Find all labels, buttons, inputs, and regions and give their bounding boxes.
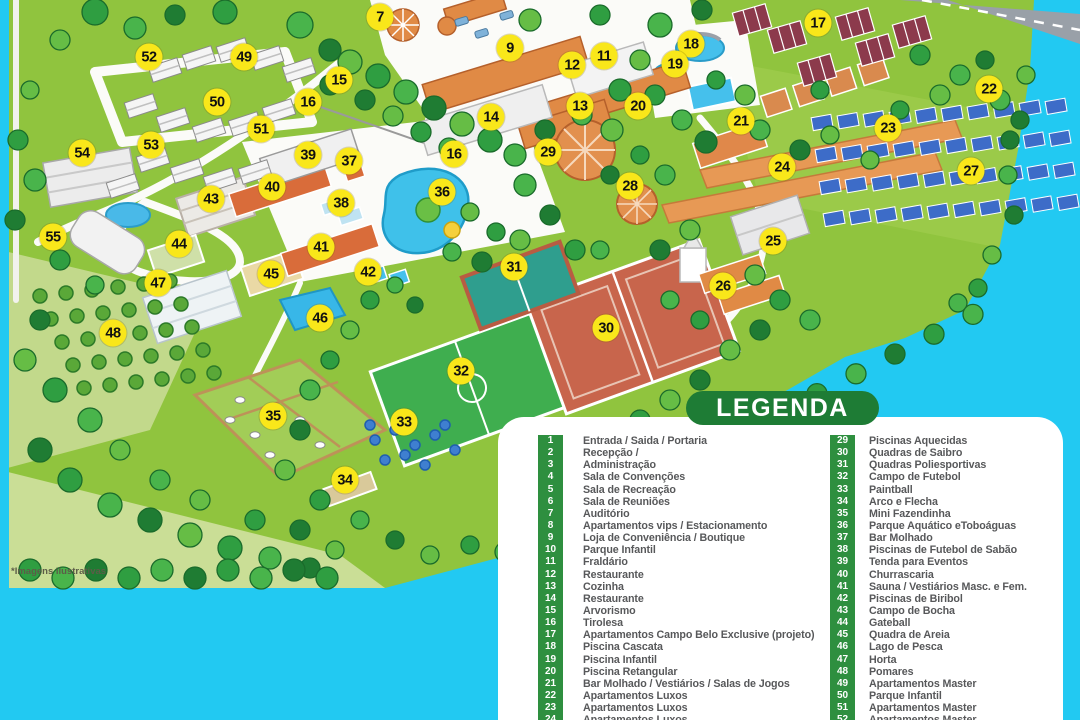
- tree-icon: [190, 490, 210, 510]
- tree-icon: [138, 508, 162, 532]
- map-marker-7: 7: [367, 4, 394, 31]
- legend-row: 3Administração: [538, 459, 814, 471]
- tree-icon: [422, 96, 446, 120]
- legend-item-label: Piscina Cascata: [583, 641, 663, 653]
- solar-panel: [875, 207, 897, 223]
- map-marker-42: 42: [355, 259, 382, 286]
- legend-column-2: 29Piscinas Aquecidas30Quadras de Saibro3…: [830, 435, 1027, 720]
- legend-item-label: Apartamentos Luxos: [583, 702, 688, 714]
- legend-row: 51Apartamentos Master: [830, 702, 1027, 714]
- map-marker-9: 9: [497, 35, 524, 62]
- legend-row: 7Auditório: [538, 508, 814, 520]
- legend-row: 19Piscina Infantil: [538, 654, 814, 666]
- map-marker-28: 28: [617, 173, 644, 200]
- tree-icon: [450, 112, 474, 136]
- inflatable: [410, 440, 420, 450]
- tree-icon: [1017, 66, 1035, 84]
- legend-item-label: Churrascaria: [869, 569, 934, 581]
- legend-row: 8Apartamentos vips / Estacionamento: [538, 520, 814, 532]
- map-marker-54: 54: [69, 140, 96, 167]
- map-marker-33: 33: [391, 409, 418, 436]
- tree-icon: [275, 460, 295, 480]
- tree-icon: [800, 310, 820, 330]
- tree-icon: [680, 220, 700, 240]
- tree-icon: [821, 126, 839, 144]
- tree-icon: [321, 351, 339, 369]
- legend-item-label: Arvorismo: [583, 605, 636, 617]
- tree-icon: [394, 80, 418, 104]
- farm-animal: [235, 397, 245, 403]
- tree-icon: [407, 297, 423, 313]
- tree-icon: [735, 85, 755, 105]
- map-marker-35: 35: [260, 403, 287, 430]
- legend-item-label: Sala de Reuniões: [583, 496, 670, 508]
- solar-panel: [967, 104, 989, 120]
- legend-item-label: Piscinas de Futebol de Sabão: [869, 544, 1017, 556]
- legend-item-number: 47: [830, 654, 855, 666]
- tree-icon: [720, 340, 740, 360]
- map-marker-29: 29: [535, 139, 562, 166]
- fruit-tree: [66, 358, 80, 372]
- solar-panel: [1031, 196, 1053, 212]
- fruit-tree: [170, 346, 184, 360]
- legend-item-number: 18: [538, 641, 563, 653]
- legend-item-number: 20: [538, 666, 563, 678]
- legend-item-number: 32: [830, 471, 855, 483]
- tree-icon: [8, 130, 28, 150]
- tree-icon: [510, 230, 530, 250]
- legend-panel: 1Entrada / Saida / Portaria2Recepção /3A…: [498, 417, 1063, 720]
- inflatable: [370, 435, 380, 445]
- solar-panel: [893, 141, 915, 157]
- legend-row: 17Apartamentos Campo Belo Exclusive (pro…: [538, 629, 814, 641]
- map-marker-26: 26: [710, 273, 737, 300]
- solar-panel: [941, 105, 963, 121]
- legend-item-label: Piscina Retangular: [583, 666, 677, 678]
- legend-item-number: 2: [538, 447, 563, 459]
- tree-icon: [259, 547, 281, 569]
- tree-icon: [811, 81, 829, 99]
- fruit-tree: [181, 369, 195, 383]
- inflatable: [420, 460, 430, 470]
- inflatable: [365, 420, 375, 430]
- fruit-tree: [55, 335, 69, 349]
- tree-icon: [461, 536, 479, 554]
- legend-row: 46Lago de Pesca: [830, 641, 1027, 653]
- map-marker-25: 25: [760, 228, 787, 255]
- legend-row: 34Arco e Flecha: [830, 496, 1027, 508]
- fruit-tree: [77, 381, 91, 395]
- legend-item-label: Fraldário: [583, 556, 628, 568]
- tree-icon: [290, 420, 310, 440]
- solar-panel: [841, 145, 863, 161]
- tree-icon: [351, 511, 369, 529]
- tree-icon: [660, 390, 680, 410]
- tree-icon: [86, 276, 104, 294]
- solar-panel: [871, 175, 893, 191]
- legend-row: 13Cozinha: [538, 581, 814, 593]
- legend-item-label: Piscinas de Biribol: [869, 593, 963, 605]
- legend-item-label: Arco e Flecha: [869, 496, 938, 508]
- legend-item-number: 11: [538, 556, 563, 568]
- legend-row: 14Restaurante: [538, 593, 814, 605]
- legend-item-number: 50: [830, 690, 855, 702]
- tree-icon: [50, 250, 70, 270]
- tree-icon: [443, 243, 461, 261]
- map-marker-39: 39: [295, 142, 322, 169]
- solar-panel: [897, 173, 919, 189]
- legend-item-label: Restaurante: [583, 569, 644, 581]
- legend-item-number: 6: [538, 496, 563, 508]
- legend-item-number: 4: [538, 471, 563, 483]
- legend-item-number: 42: [830, 593, 855, 605]
- legend-row: 38Piscinas de Futebol de Sabão: [830, 544, 1027, 556]
- legend-item-number: 17: [538, 629, 563, 641]
- legend-item-number: 44: [830, 617, 855, 629]
- legend-item-number: 29: [830, 435, 855, 447]
- tree-icon: [218, 536, 242, 560]
- legend-item-label: Loja de Conveniência / Boutique: [583, 532, 745, 544]
- legend-title: LEGENDA: [686, 391, 879, 425]
- legend-item-label: Entrada / Saida / Portaria: [583, 435, 707, 447]
- map-marker-46: 46: [307, 305, 334, 332]
- tree-icon: [861, 151, 879, 169]
- map-marker-24: 24: [769, 154, 796, 181]
- legend-item-number: 5: [538, 484, 563, 496]
- map-marker-52: 52: [136, 44, 163, 71]
- inflatable: [440, 420, 450, 430]
- tree-icon: [630, 50, 650, 70]
- tree-icon: [478, 128, 502, 152]
- tree-icon: [690, 370, 710, 390]
- tree-icon: [5, 210, 25, 230]
- legend-item-number: 21: [538, 678, 563, 690]
- tree-icon: [695, 131, 717, 153]
- legend-item-label: Horta: [869, 654, 896, 666]
- legend-row: 36Parque Aquático eToboáguas: [830, 520, 1027, 532]
- map-marker-23: 23: [875, 115, 902, 142]
- tree-icon: [213, 0, 237, 24]
- map-marker-49: 49: [231, 44, 258, 71]
- fruit-tree: [70, 309, 84, 323]
- tree-icon: [366, 64, 390, 88]
- fruit-tree: [155, 372, 169, 386]
- tree-icon: [310, 490, 330, 510]
- tree-icon: [1005, 206, 1023, 224]
- legend-item-label: Sala de Recreação: [583, 484, 676, 496]
- solar-panel: [1049, 130, 1071, 146]
- fruit-tree: [103, 378, 117, 392]
- solar-panel: [815, 146, 837, 162]
- tree-icon: [250, 567, 272, 589]
- tree-icon: [290, 520, 310, 540]
- tree-icon: [601, 119, 623, 141]
- legend-item-label: Mini Fazendinha: [869, 508, 951, 520]
- tree-icon: [692, 0, 712, 20]
- fruit-tree: [92, 355, 106, 369]
- map-marker-34: 34: [332, 467, 359, 494]
- legend-item-label: Campo de Bocha: [869, 605, 955, 617]
- tree-icon: [124, 17, 146, 39]
- map-marker-41: 41: [308, 234, 335, 261]
- legend-item-number: 46: [830, 641, 855, 653]
- tree-icon: [976, 51, 994, 69]
- legend-item-number: 33: [830, 484, 855, 496]
- tree-icon: [118, 567, 140, 589]
- tree-icon: [184, 567, 206, 589]
- map-marker-31: 31: [501, 254, 528, 281]
- map-marker-37: 37: [336, 148, 363, 175]
- legend-item-number: 31: [830, 459, 855, 471]
- legend-row: 32Campo de Futebol: [830, 471, 1027, 483]
- legend-item-number: 1: [538, 435, 563, 447]
- solar-panel: [953, 201, 975, 217]
- tree-icon: [150, 470, 170, 490]
- legend-item-number: 45: [830, 629, 855, 641]
- legend-row: 29Piscinas Aquecidas: [830, 435, 1027, 447]
- tree-icon: [50, 30, 70, 50]
- tree-icon: [650, 240, 670, 260]
- legend-item-label: Sauna / Vestiários Masc. e Fem.: [869, 581, 1027, 593]
- tree-icon: [326, 541, 344, 559]
- legend-row: 31Quadras Poliesportivas: [830, 459, 1027, 471]
- legend-item-label: Gateball: [869, 617, 910, 629]
- legend-item-label: Restaurante: [583, 593, 644, 605]
- legend-item-label: Quadras de Saibro: [869, 447, 962, 459]
- legend-row: 5Sala de Recreação: [538, 484, 814, 496]
- tree-icon: [846, 364, 866, 384]
- solar-panel: [819, 178, 841, 194]
- map-marker-16b: 16: [441, 141, 468, 168]
- map-marker-11: 11: [591, 43, 618, 70]
- tree-icon: [341, 321, 359, 339]
- legend-row: 49Apartamentos Master: [830, 678, 1027, 690]
- tree-icon: [655, 165, 675, 185]
- inflatable: [400, 450, 410, 460]
- legend-item-number: 39: [830, 556, 855, 568]
- legend-row: 40Churrascaria: [830, 569, 1027, 581]
- water-left-strip: [0, 0, 9, 720]
- tree-icon: [514, 174, 536, 196]
- solar-panel: [923, 171, 945, 187]
- fruit-tree: [33, 289, 47, 303]
- legend-row: 2Recepção /: [538, 447, 814, 459]
- map-marker-14: 14: [478, 104, 505, 131]
- legend-item-number: 40: [830, 569, 855, 581]
- solar-panel: [1027, 164, 1049, 180]
- legend-row: 50Parque Infantil: [830, 690, 1027, 702]
- tree-icon: [178, 523, 202, 547]
- map-marker-50: 50: [204, 89, 231, 116]
- map-marker-51: 51: [248, 116, 275, 143]
- map-marker-40: 40: [259, 174, 286, 201]
- map-marker-36: 36: [429, 179, 456, 206]
- tree-icon: [963, 304, 983, 324]
- tree-icon: [950, 65, 970, 85]
- fruit-tree: [148, 300, 162, 314]
- map-marker-22: 22: [976, 76, 1003, 103]
- inflatable: [450, 445, 460, 455]
- tree-icon: [1001, 131, 1019, 149]
- tree-icon: [98, 493, 122, 517]
- legend-row: 43Campo de Bocha: [830, 605, 1027, 617]
- tree-icon: [217, 559, 239, 581]
- fruit-tree: [207, 366, 221, 380]
- map-marker-32: 32: [448, 358, 475, 385]
- legend-item-number: 41: [830, 581, 855, 593]
- fruit-tree: [159, 323, 173, 337]
- tree-icon: [504, 144, 526, 166]
- tree-icon: [43, 378, 67, 402]
- tree-icon: [110, 440, 130, 460]
- tree-icon: [661, 291, 679, 309]
- legend-row: 23Apartamentos Luxos: [538, 702, 814, 714]
- legend-item-label: Cozinha: [583, 581, 624, 593]
- legend-item-label: Apartamentos vips / Estacionamento: [583, 520, 767, 532]
- tree-icon: [383, 106, 403, 126]
- fruit-tree: [174, 297, 188, 311]
- legend-row: 52Apartamentos Master: [830, 714, 1027, 720]
- legend-item-number: 9: [538, 532, 563, 544]
- tree-icon: [487, 223, 505, 241]
- legend-row: 12Restaurante: [538, 569, 814, 581]
- legend-item-label: Bar Molhado / Vestiários / Salas de Jogo…: [583, 678, 790, 690]
- legend-item-label: Parque Infantil: [869, 690, 942, 702]
- legend-item-number: 22: [538, 690, 563, 702]
- tree-icon: [750, 320, 770, 340]
- legend-item-number: 10: [538, 544, 563, 556]
- legend-row: 45Quadra de Areia: [830, 629, 1027, 641]
- legend-item-number: 36: [830, 520, 855, 532]
- legend-item-number: 19: [538, 654, 563, 666]
- tree-icon: [283, 559, 305, 581]
- legend-row: 1Entrada / Saida / Portaria: [538, 435, 814, 447]
- solar-panel: [919, 139, 941, 155]
- legend-item-number: 35: [830, 508, 855, 520]
- legend-row: 18Piscina Cascata: [538, 641, 814, 653]
- tree-icon: [707, 71, 725, 89]
- legend-item-label: Bar Molhado: [869, 532, 933, 544]
- map-marker-45: 45: [258, 261, 285, 288]
- map-marker-15: 15: [326, 67, 353, 94]
- legend-item-label: Apartamentos Luxos: [583, 714, 688, 720]
- tree-icon: [924, 324, 944, 344]
- legend-item-label: Administração: [583, 459, 656, 471]
- legend-row: 6Sala de Reuniões: [538, 496, 814, 508]
- solar-panel: [971, 136, 993, 152]
- legend-row: 4Sala de Convenções: [538, 471, 814, 483]
- legend-item-label: Tirolesa: [583, 617, 623, 629]
- fruit-tree: [118, 352, 132, 366]
- farm-animal: [265, 452, 275, 458]
- legend-row: 39Tenda para Eventos: [830, 556, 1027, 568]
- legend-item-number: 23: [538, 702, 563, 714]
- legend-item-number: 14: [538, 593, 563, 605]
- map-marker-27: 27: [958, 158, 985, 185]
- tree-icon: [245, 510, 265, 530]
- solar-panel: [1053, 162, 1075, 178]
- solar-panel: [901, 205, 923, 221]
- solar-panel: [837, 113, 859, 129]
- fruit-tree: [144, 349, 158, 363]
- tree-icon: [300, 380, 320, 400]
- solar-panel: [945, 137, 967, 153]
- legend-item-label: Recepção /: [583, 447, 638, 459]
- tree-icon: [355, 90, 375, 110]
- tree-icon: [631, 146, 649, 164]
- farm-animal: [315, 442, 325, 448]
- legend-item-label: Campo de Futebol: [869, 471, 961, 483]
- legend-item-label: Parque Infantil: [583, 544, 656, 556]
- legend-row: 42Piscinas de Biribol: [830, 593, 1027, 605]
- farm-animal: [225, 417, 235, 423]
- legend-row: 20Piscina Retangular: [538, 666, 814, 678]
- farm-animal: [250, 432, 260, 438]
- map-marker-13: 13: [567, 93, 594, 120]
- tree-icon: [672, 110, 692, 130]
- map-marker-12: 12: [559, 52, 586, 79]
- tree-icon: [165, 5, 185, 25]
- legend-item-label: Apartamentos Master: [869, 678, 976, 690]
- map-marker-44: 44: [166, 231, 193, 258]
- map-marker-55: 55: [40, 224, 67, 251]
- legend-item-number: 7: [538, 508, 563, 520]
- legend-item-number: 38: [830, 544, 855, 556]
- tree-icon: [983, 246, 1001, 264]
- tree-icon: [386, 531, 404, 549]
- legend-row: 15Arvorismo: [538, 605, 814, 617]
- fruit-tree: [185, 320, 199, 334]
- legend-item-number: 49: [830, 678, 855, 690]
- tree-icon: [78, 408, 102, 432]
- inflatable: [380, 455, 390, 465]
- tree-icon: [361, 291, 379, 309]
- tree-icon: [151, 559, 173, 581]
- legend-item-number: 48: [830, 666, 855, 678]
- legend-row: 22Apartamentos Luxos: [538, 690, 814, 702]
- legend-item-number: 12: [538, 569, 563, 581]
- solar-panel: [1023, 132, 1045, 148]
- map-marker-19: 19: [662, 51, 689, 78]
- legend-item-label: Paintball: [869, 484, 913, 496]
- tree-icon: [319, 39, 341, 61]
- legend-item-number: 52: [830, 714, 855, 720]
- legend-row: 37Bar Molhado: [830, 532, 1027, 544]
- fruit-tree: [59, 286, 73, 300]
- legend-item-label: Quadras Poliesportivas: [869, 459, 986, 471]
- tree-icon: [999, 166, 1017, 184]
- legend-item-number: 34: [830, 496, 855, 508]
- tree-icon: [461, 203, 479, 221]
- tree-icon: [691, 311, 709, 329]
- legend-item-number: 13: [538, 581, 563, 593]
- legend-item-label: Tenda para Eventos: [869, 556, 968, 568]
- map-marker-16: 16: [295, 89, 322, 116]
- legend-item-label: Apartamentos Master: [869, 702, 976, 714]
- legend-item-number: 37: [830, 532, 855, 544]
- map-marker-47: 47: [145, 270, 172, 297]
- legend-row: 41Sauna / Vestiários Masc. e Fem.: [830, 581, 1027, 593]
- legend-row: 21Bar Molhado / Vestiários / Salas de Jo…: [538, 678, 814, 690]
- map-marker-53: 53: [138, 132, 165, 159]
- legend-item-number: 3: [538, 459, 563, 471]
- tree-icon: [591, 241, 609, 259]
- legend-item-number: 43: [830, 605, 855, 617]
- legend-row: 35Mini Fazendinha: [830, 508, 1027, 520]
- tree-icon: [287, 12, 313, 38]
- solar-panel: [927, 203, 949, 219]
- solar-panel: [823, 210, 845, 226]
